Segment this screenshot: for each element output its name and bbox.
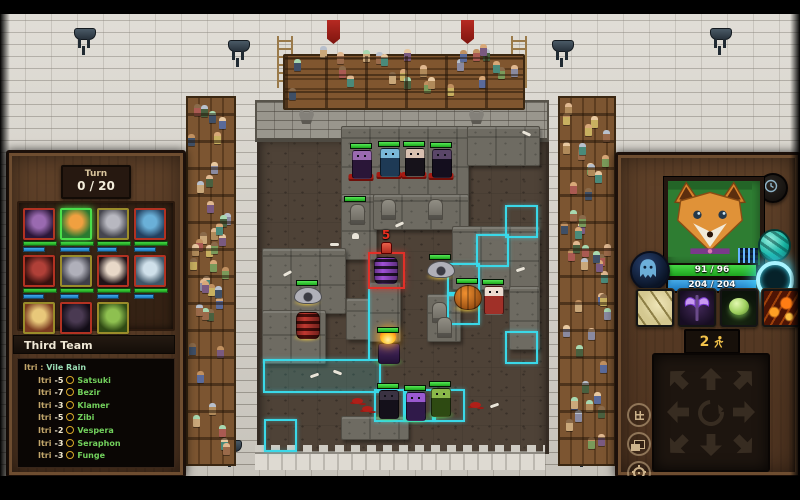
unit-hp-bar — [403, 141, 425, 147]
unit-body — [352, 150, 372, 179]
spectator — [586, 400, 593, 412]
dpad-down-icon[interactable] — [700, 434, 722, 456]
spectator — [210, 260, 217, 272]
portrait-gremlin-purple[interactable] — [23, 208, 55, 240]
character-portrait[interactable] — [664, 177, 764, 269]
portrait-siren-blue[interactable] — [134, 208, 166, 240]
spectator — [404, 49, 411, 61]
roster-mana-bar — [60, 294, 79, 299]
unit-hp-bar — [404, 385, 426, 391]
unit-body — [406, 392, 426, 421]
spectator — [294, 59, 301, 71]
turn-counter: Turn 0 / 20 — [61, 165, 131, 199]
unit-hp-bar — [430, 142, 452, 148]
spectator — [570, 210, 577, 222]
spectator — [200, 232, 207, 244]
spectator — [582, 245, 589, 257]
portrait-fox[interactable] — [60, 208, 92, 240]
spectator — [221, 438, 228, 450]
portrait-golem-ice[interactable] — [134, 255, 166, 287]
letterbox-bottom — [0, 476, 800, 500]
unit-body — [379, 390, 399, 419]
spectator — [381, 54, 388, 66]
grave-decor — [350, 204, 365, 225]
log-cast-line: Itri : Vile Rain — [24, 362, 174, 375]
spectator — [202, 308, 209, 320]
spectator — [604, 308, 611, 320]
spectator — [473, 49, 480, 61]
unit-body — [296, 312, 320, 339]
purple-axe-icon[interactable] — [678, 289, 716, 327]
dpad-right-icon[interactable] — [733, 401, 755, 423]
brazier — [228, 38, 248, 62]
highlight-tile[interactable] — [505, 205, 538, 238]
spectator — [389, 72, 396, 84]
spectator — [215, 286, 222, 298]
spectator — [579, 143, 586, 155]
letterbox-top — [0, 0, 800, 14]
unit-body — [484, 286, 504, 315]
spectator — [211, 162, 218, 174]
spirit-orb-icon[interactable] — [630, 251, 670, 291]
spectator — [598, 254, 605, 266]
dpad-up-icon[interactable] — [700, 368, 722, 390]
log-entry: Itri-5Satsuki — [24, 375, 174, 388]
spectator — [566, 419, 573, 431]
spectator — [211, 228, 218, 240]
spectator — [420, 65, 427, 77]
damage-icon — [66, 451, 74, 459]
spectator — [582, 381, 589, 393]
spectator — [337, 52, 344, 64]
dpad-left-icon[interactable] — [667, 401, 689, 423]
damage-icon — [66, 388, 74, 396]
unit-pumpkin[interactable] — [454, 285, 480, 308]
brazier — [74, 26, 94, 50]
spectator — [598, 406, 605, 418]
spectator — [194, 104, 201, 116]
spectator — [565, 103, 572, 115]
spectator — [196, 239, 203, 251]
spectator — [339, 66, 346, 78]
unit-hp-bar — [350, 143, 372, 149]
unit-body — [380, 148, 400, 177]
unit-body — [405, 148, 425, 177]
spectator — [217, 346, 224, 358]
highlight-tile[interactable] — [505, 331, 538, 364]
spectator — [400, 69, 407, 81]
red-banner — [327, 20, 340, 44]
unit-barrel-red[interactable] — [296, 312, 318, 337]
grid-icon[interactable] — [627, 403, 651, 427]
spectator — [447, 84, 454, 96]
spectator — [588, 328, 595, 340]
panel-side-buttons — [627, 403, 651, 485]
grave-decor — [437, 317, 452, 338]
log-entry: Itri-7Bezir — [24, 387, 174, 400]
dpad-up-right-icon[interactable] — [728, 363, 759, 394]
spectator — [578, 148, 585, 160]
red-banner — [461, 20, 474, 44]
status-runes-icon — [738, 248, 758, 263]
runner-icon — [713, 335, 724, 349]
spectator — [575, 227, 582, 239]
unit-shroom-white[interactable] — [484, 286, 502, 313]
unit-assassin-dark[interactable] — [379, 390, 397, 417]
roster-hp-bar — [60, 241, 94, 246]
roster-hp-bar — [97, 288, 131, 293]
turn-value: 0 / 20 — [63, 179, 129, 193]
spectator — [219, 117, 226, 129]
damage-icon — [66, 376, 74, 384]
spectator — [223, 443, 230, 455]
skull-decor — [352, 233, 359, 239]
unit-hp-bar — [456, 278, 478, 284]
moves-counter: 2 — [684, 329, 740, 354]
spectator — [209, 111, 216, 123]
portrait-bat-gray-2[interactable] — [60, 255, 92, 287]
unit-panther-dark[interactable] — [432, 149, 450, 176]
unit-body — [427, 261, 455, 278]
brazier — [552, 38, 572, 62]
unit-gremlin-purple[interactable] — [352, 150, 370, 177]
spectator — [585, 124, 592, 136]
unit-imp-violet[interactable] — [406, 392, 424, 419]
roster-hp-bar — [134, 241, 168, 246]
spectator — [347, 75, 354, 87]
team-roster — [17, 201, 175, 331]
portrait-witch-pale[interactable] — [97, 255, 129, 287]
roster-hp-bar — [23, 241, 57, 246]
spectator — [498, 67, 505, 79]
log-title: Third Team — [13, 335, 175, 354]
unit-body — [378, 343, 400, 364]
spectator — [224, 213, 231, 225]
green-orb-icon[interactable] — [720, 289, 758, 327]
bone-decor — [330, 243, 339, 246]
unit-body — [431, 388, 451, 417]
unit-hp-bar — [378, 141, 400, 147]
spectator — [602, 155, 609, 167]
spectator — [563, 142, 570, 154]
roster-hp-bar — [134, 288, 168, 293]
portrait-shade-dark[interactable] — [60, 302, 92, 334]
unit-hp-bar — [429, 254, 451, 260]
spectator — [219, 425, 226, 437]
spectator — [587, 163, 594, 175]
spectator — [595, 171, 602, 183]
movement-pad[interactable] — [652, 353, 770, 472]
unit-hp-bar — [377, 327, 399, 333]
highlight-tile[interactable] — [476, 234, 509, 267]
spectator — [207, 309, 214, 321]
spectator — [596, 260, 603, 272]
vignette-left — [0, 0, 10, 500]
bleachers-right — [558, 96, 616, 466]
splat-decor — [362, 406, 373, 412]
spectator — [188, 134, 195, 146]
spectator — [203, 276, 210, 288]
spectator — [571, 397, 578, 409]
spectator — [211, 242, 218, 254]
log-entry: Itri-5Zibi — [24, 412, 174, 425]
spectator — [428, 77, 435, 89]
roster-slot — [134, 255, 168, 299]
roster-slot — [60, 255, 94, 299]
portrait-orc-green[interactable] — [97, 302, 129, 334]
dpad-down-left-icon[interactable] — [662, 429, 693, 460]
spectator — [219, 234, 226, 246]
spectator — [598, 293, 605, 305]
unit-warrior-blue[interactable] — [380, 148, 398, 175]
unit-body — [454, 285, 482, 310]
spectator — [579, 215, 586, 227]
spectator — [563, 113, 570, 125]
spectator — [457, 59, 464, 71]
spectator — [206, 245, 213, 257]
unit-bat-right[interactable] — [427, 261, 453, 276]
unit-hp-bar — [429, 381, 451, 387]
spectator — [604, 244, 611, 256]
combat-log: Itri : Vile RainItri-5SatsukiItri-7Bezir… — [17, 358, 175, 468]
spectator — [190, 258, 197, 270]
dpad-down-right-icon[interactable] — [728, 429, 759, 460]
spectator — [573, 241, 580, 253]
spectator — [424, 81, 431, 93]
spectator — [591, 116, 598, 128]
bleachers-left — [186, 96, 236, 466]
hpbar-decor — [344, 196, 366, 202]
roster-mana-bar — [23, 294, 44, 299]
log-entry: Itri-3Seraphon — [24, 438, 174, 451]
unit-barrel-purple[interactable] — [374, 257, 396, 282]
claw-slash-icon[interactable] — [636, 289, 674, 327]
spectator — [563, 325, 570, 337]
spectator — [216, 223, 223, 235]
spectator — [320, 46, 327, 58]
spectator — [200, 279, 207, 291]
roster-slot — [97, 255, 131, 299]
fox-portrait-art — [668, 181, 752, 257]
splat-decor — [470, 402, 481, 408]
ability-bar — [636, 289, 800, 327]
spectator — [197, 371, 204, 383]
spectator-fence — [283, 54, 525, 110]
spectator — [601, 271, 608, 283]
spectator — [598, 434, 605, 446]
roster-slot — [23, 255, 57, 299]
spectator — [220, 215, 227, 227]
roster-hp-bar — [23, 288, 57, 293]
unit-bat-left[interactable] — [294, 287, 320, 302]
spectator — [206, 175, 213, 187]
spectator — [222, 267, 229, 279]
unit-fire-mage[interactable] — [378, 334, 398, 362]
splat-decor — [352, 398, 363, 404]
left-panel: Turn 0 / 20 Third Team Itri : Vile RainI… — [6, 150, 186, 478]
spectator — [575, 410, 582, 422]
game-screen: 5 Turn 0 / 20 Third Team Itri : Vile Rai… — [0, 0, 800, 500]
spectator — [202, 281, 209, 293]
spectator — [196, 304, 203, 316]
dpad-up-left-icon[interactable] — [662, 363, 693, 394]
unit-body — [374, 257, 398, 284]
damage-icon — [66, 426, 74, 434]
grave-decor — [381, 199, 396, 220]
spectator — [588, 437, 595, 449]
unit-hp-bar — [296, 280, 318, 286]
health-bar: 91 / 96 — [666, 263, 758, 278]
roster-slot — [23, 208, 57, 252]
damage-icon — [66, 401, 74, 409]
unit-hp-bar — [377, 383, 399, 389]
spectator — [511, 65, 518, 77]
spectator — [480, 44, 487, 56]
spectator — [600, 361, 607, 373]
spectator — [593, 251, 600, 263]
spectator — [594, 392, 601, 404]
log-entry: Itri-3Klamer — [24, 400, 174, 413]
roster-mana-bar — [97, 294, 119, 299]
spectator — [209, 403, 216, 415]
teal-sphere-icon[interactable] — [758, 229, 791, 262]
spectator — [207, 201, 214, 213]
damage-icon — [66, 439, 74, 447]
spectator — [193, 415, 200, 427]
spectator — [603, 130, 610, 142]
portrait-demon-red[interactable] — [23, 255, 55, 287]
spectator — [600, 294, 607, 306]
right-panel: 91 / 96 204 / 204 2 — [615, 152, 800, 478]
gargoyle-icon — [469, 108, 484, 124]
portrait-shroom[interactable] — [23, 302, 55, 334]
roster-slot — [60, 208, 94, 252]
spectator — [571, 398, 578, 410]
spectator — [214, 132, 221, 144]
unit-body — [432, 149, 452, 178]
unit-witch-dark[interactable] — [405, 148, 423, 175]
spectator — [479, 76, 486, 88]
unit-hp-bar — [482, 279, 504, 285]
spectator — [192, 244, 199, 256]
roster-slot — [97, 208, 131, 252]
spectator — [581, 258, 588, 270]
unit-orc-green[interactable] — [431, 388, 449, 415]
spectator — [561, 222, 568, 234]
spectator — [289, 88, 296, 100]
roster-hp-bar — [60, 288, 94, 293]
spectator — [404, 77, 411, 89]
spectator — [363, 50, 370, 62]
gargoyle-icon — [299, 108, 314, 124]
spectator — [201, 105, 208, 117]
highlight-area[interactable] — [263, 359, 381, 393]
spectator — [570, 182, 577, 194]
roster-mana-bar — [134, 247, 156, 252]
damage-marker: 5 — [376, 228, 396, 254]
arena-wall-bottom — [255, 451, 545, 470]
spectator — [578, 222, 585, 234]
portrait-bat-gray[interactable] — [97, 208, 129, 240]
roster-mana-bar — [23, 247, 45, 252]
spectator — [208, 284, 215, 296]
imp-marker-icon — [381, 242, 392, 254]
vignette-right — [790, 0, 800, 500]
layers-icon[interactable] — [627, 432, 651, 456]
highlight-tile[interactable] — [264, 419, 297, 452]
spectator — [216, 297, 223, 309]
spectator — [576, 345, 583, 357]
moves-value: 2 — [700, 334, 710, 350]
roster-slot — [134, 208, 168, 252]
log-entry: Itri-2Vespera — [24, 425, 174, 438]
brazier — [710, 26, 730, 50]
grave-decor — [428, 199, 443, 220]
damage-icon — [66, 413, 74, 421]
spectator — [585, 188, 592, 200]
log-entry: Itri-3Funge — [24, 450, 174, 463]
unit-body — [294, 287, 322, 304]
roster-mana-bar — [97, 247, 117, 252]
turn-label: Turn — [63, 169, 129, 179]
spectator — [568, 249, 575, 261]
roster-mana-bar — [134, 294, 154, 299]
spectator — [588, 164, 595, 176]
spectator — [460, 50, 467, 62]
roster-mana-bar — [60, 247, 90, 252]
spectator — [493, 61, 500, 73]
spectator — [189, 343, 196, 355]
roster-hp-bar — [97, 241, 131, 246]
spectator — [575, 300, 582, 312]
spectator — [197, 181, 204, 193]
rotate-icon[interactable] — [693, 395, 730, 432]
